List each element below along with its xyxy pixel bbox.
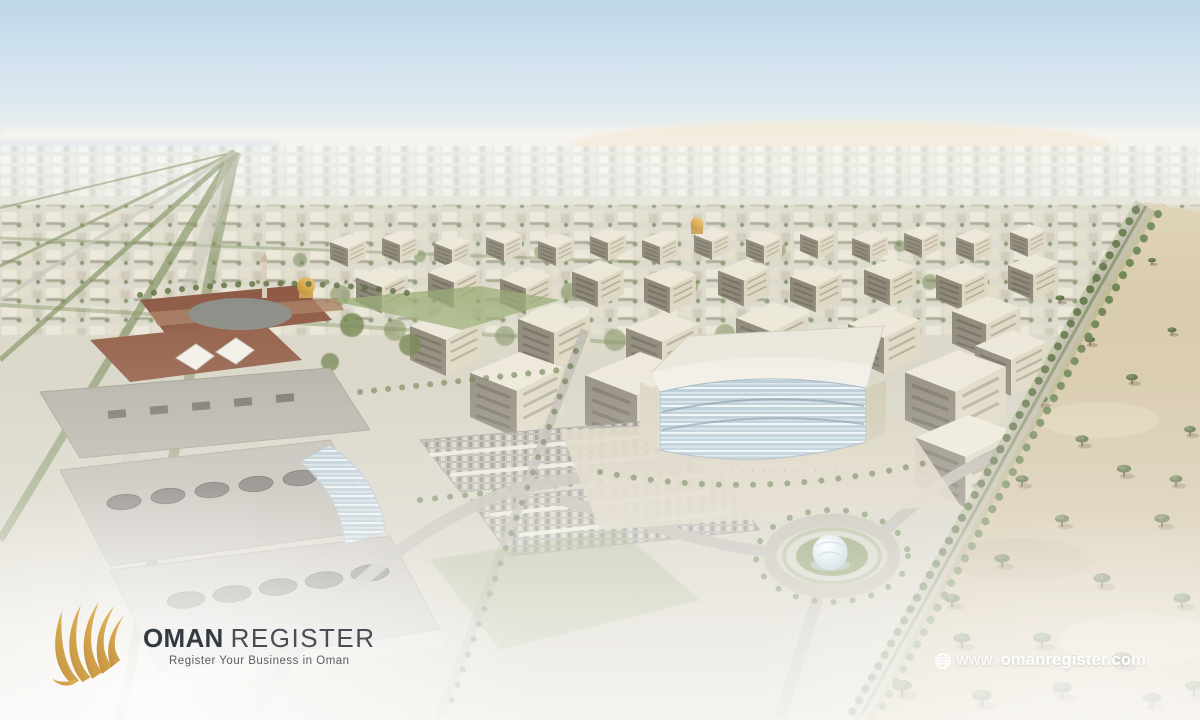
- website-url[interactable]: www.omanregister.com: [934, 651, 1146, 670]
- hero-banner: OMANREGISTER Register Your Business in O…: [0, 0, 1200, 720]
- logo-text: OMANREGISTER Register Your Business in O…: [143, 625, 376, 667]
- wing-logo-icon: [48, 598, 130, 694]
- gold-dome: [297, 277, 315, 295]
- globe-icon: [934, 652, 952, 670]
- website-domain: omanregister.com: [1001, 651, 1146, 670]
- logo-tagline: Register Your Business in Oman: [169, 655, 350, 667]
- website-prefix: www.: [956, 651, 996, 670]
- logo-text-primary: OMAN: [143, 623, 224, 653]
- minaret: [262, 262, 267, 298]
- logo-text-secondary: REGISTER: [231, 623, 376, 653]
- logo: OMANREGISTER Register Your Business in O…: [48, 598, 376, 694]
- far-gold-dome: [691, 218, 704, 235]
- gray-dome-roof: [188, 298, 292, 330]
